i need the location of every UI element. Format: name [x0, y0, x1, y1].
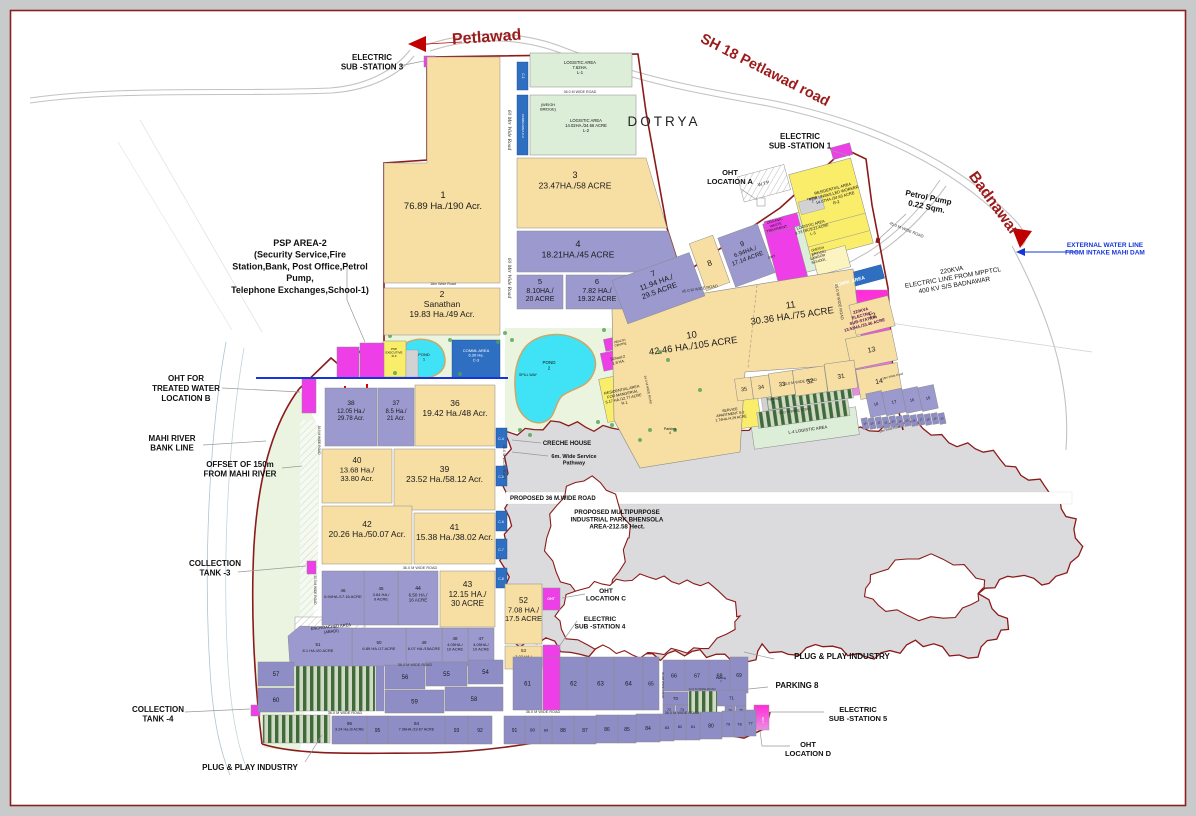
svg-text:87: 87: [582, 728, 588, 734]
oht-a-block: [757, 198, 765, 206]
road-36-3: 36.0 M WIDE ROAD: [328, 711, 363, 715]
plot-85: 85: [618, 715, 636, 743]
plot-66: 66: [663, 660, 685, 691]
label-plug-play-left: PLUG & PLAY INDUSTRY: [202, 763, 298, 772]
plot-38: 3812.05 Ha./29.78 Acr.: [325, 388, 377, 446]
svg-text:95: 95: [375, 728, 381, 734]
plot-80: 80: [700, 712, 722, 739]
plot-86: 86: [596, 715, 618, 743]
road-60mtr-1: 60 Mtr Wide Road: [506, 110, 512, 151]
label-external-water: EXTERNAL WATER LINEFROM INTAKE MAHI DAM: [1065, 242, 1145, 257]
svg-text:63: 63: [597, 682, 604, 688]
label-spill-way: SPILL WAY: [519, 373, 538, 377]
plot-40: 4013.68 Ha./33.80 Acr.: [322, 449, 392, 503]
svg-text:79: 79: [726, 721, 731, 726]
plot-94: 947.96HA./19.67 ACRE: [388, 716, 445, 744]
svg-text:89: 89: [544, 727, 549, 732]
road-30-vert: 30.0M WIDE ROAD: [661, 672, 665, 699]
plot-57: 57: [258, 662, 294, 686]
svg-text:91: 91: [512, 728, 518, 734]
plot-48: 484.05HA./10 ACRE: [442, 628, 468, 666]
plot-87: 87: [574, 716, 596, 744]
label-oht-52: OHT: [547, 597, 555, 601]
plot-3: 323.47HA./58 ACRE: [517, 158, 667, 228]
plot-37: 378.5 Ha./21 Acr.: [378, 388, 414, 446]
label-parking-1: 1: [770, 208, 772, 212]
plot-82: 82: [674, 713, 686, 740]
plot-45: 453.64 HA./9 ACRE: [364, 571, 398, 625]
svg-text:70: 70: [673, 696, 679, 701]
svg-text:82: 82: [678, 724, 683, 729]
plot-69: 69: [730, 657, 748, 693]
plot-96: 963.24 Ha./8 ACRE: [332, 716, 367, 744]
plot-78: 78: [734, 711, 745, 737]
svg-text:60: 60: [273, 698, 280, 704]
plot-95: 95: [367, 716, 388, 744]
svg-text:67: 67: [694, 673, 700, 679]
plot-50: 506.89 HA./17 ACRE: [352, 628, 406, 666]
plot-84: 84: [636, 714, 660, 742]
plot-59: 59: [385, 690, 444, 713]
comm-c8: C-8: [498, 577, 504, 581]
plot-61: 61: [513, 657, 542, 710]
road-36-top: 36.0 M WIDE ROAD: [564, 90, 597, 94]
plot-54: 54: [468, 660, 503, 684]
comm-c1: C-1: [521, 73, 525, 78]
svg-text:86: 86: [604, 727, 610, 733]
road-36-2: 36.0 M WIDE ROAD: [398, 663, 433, 667]
plot-88: 88: [552, 716, 574, 744]
plot-60: 60: [258, 688, 294, 712]
plot-51: 518.1 HA./20 ACRE: [288, 626, 352, 666]
parking-8-block: [689, 690, 717, 713]
svg-text:34: 34: [758, 385, 765, 392]
road-12: 12.0 M WIDE ROAD: [688, 687, 716, 691]
svg-text:83: 83: [665, 725, 670, 730]
plot-58: 58: [445, 687, 503, 711]
oht-strip-61: [543, 657, 560, 710]
svg-text:31: 31: [837, 373, 846, 381]
svg-text:92: 92: [477, 728, 483, 734]
label-parking-8: PARKING 8: [776, 681, 820, 690]
plot-65: 65: [643, 657, 659, 710]
plot-77: 77: [745, 710, 756, 736]
plot-92: 92: [468, 716, 492, 744]
parking-row-a: [296, 661, 375, 711]
plot-44: 446.50 HA./16 ACRE: [398, 571, 438, 625]
comm-c2: COMM AREA C-2: [521, 114, 525, 138]
svg-text:80: 80: [708, 723, 714, 729]
svg-text:64: 64: [625, 682, 632, 688]
plot-90: 90: [525, 716, 540, 744]
comm-c4: C-4: [498, 437, 504, 441]
svg-text:57: 57: [273, 672, 280, 678]
svg-text:65: 65: [648, 681, 654, 687]
site-plan-map: 176.89 Ha./190 Acr.2Sanathan19.83 Ha./49…: [0, 0, 1196, 816]
svg-text:55: 55: [443, 672, 450, 678]
plot-34: 34: [751, 375, 772, 399]
plot-83: 83: [660, 714, 674, 741]
svg-text:56: 56: [402, 675, 409, 681]
svg-text:84: 84: [645, 726, 651, 732]
svg-text:85: 85: [624, 727, 630, 733]
site-plan-page: 176.89 Ha./190 Acr.2Sanathan19.83 Ha./49…: [0, 0, 1196, 816]
label-offset-150m: OFFSET OF 150mFROM MAHI RIVER: [204, 460, 277, 478]
plot-70: 70: [663, 692, 688, 705]
parking-3-block: [406, 350, 418, 377]
plot-52: 527.08 HA./17.5 ACRE: [505, 584, 542, 644]
svg-text:66: 66: [671, 673, 677, 679]
plot-2: 2Sanathan19.83 Ha./49 Acr.: [384, 288, 500, 335]
plot-35: 35: [735, 377, 754, 401]
svg-text:54: 54: [482, 670, 489, 676]
road-36-4: 36.0 M WIDE ROAD: [526, 710, 561, 714]
svg-text:90: 90: [530, 728, 536, 733]
plot-79: 79: [722, 711, 734, 737]
label-proposed-road: PROPOSED 36 M.WIDE ROAD: [510, 496, 596, 502]
svg-text:59: 59: [411, 700, 418, 706]
dotrya-village-label: DOTRYA: [627, 114, 700, 129]
comm-c7: C-7: [498, 548, 504, 552]
comm-c6: C-6: [498, 520, 504, 524]
label-oht-5: OHT: [761, 717, 765, 724]
oht-b-block: [302, 379, 316, 413]
plot-42: 4220.26 Ha./50.07 Acr.: [322, 506, 412, 564]
plot-46: 466.94HA./17.16 ACRE: [322, 571, 364, 625]
plot-89: 89: [540, 716, 552, 744]
label-creche-house: CRECHE HOUSE: [543, 441, 591, 447]
plot-5: 58.10HA./20 ACRE: [517, 275, 563, 309]
svg-text:93: 93: [454, 728, 460, 734]
plot-49: 496.07 HA./15ACRE: [406, 628, 442, 666]
road-60mtr-2: 60 Mtr Wide Road: [506, 258, 512, 299]
svg-text:88: 88: [560, 728, 566, 734]
svg-text:78: 78: [737, 721, 742, 726]
svg-text:81: 81: [691, 724, 696, 729]
psp-block-1: [337, 347, 359, 378]
plot-93: 93: [445, 716, 468, 744]
plot-43: 4312.15 HA./30 ACRE: [440, 571, 495, 627]
plot-41: 4115.38 Ha./38.02 Acr.: [414, 513, 495, 564]
plot-91: 91: [504, 716, 525, 744]
plot-71: 71: [717, 690, 746, 706]
plot-56: 56: [385, 665, 425, 689]
road-36-5: 36.0 M WIDE ROAD: [665, 711, 700, 715]
svg-text:35: 35: [741, 387, 748, 394]
label-mahi-river: MAHI RIVERBANK LINE: [148, 434, 195, 452]
svg-text:71: 71: [729, 696, 735, 701]
plot-62: 62: [560, 657, 587, 710]
plot-63: 63: [587, 657, 614, 710]
psp-block-2: [360, 343, 384, 378]
collection-tank-3-block: [307, 561, 316, 574]
svg-text:61: 61: [524, 682, 531, 688]
road-18-5: 18.5 M WIDE ROAD: [317, 425, 321, 455]
road-36-1: 36.0 M WIDE ROAD: [403, 566, 438, 570]
plot-39: 3923.52 Ha./58.12 Acr.: [394, 449, 495, 510]
svg-text:77: 77: [748, 720, 753, 725]
plot-31: 31: [824, 360, 858, 392]
svg-text:62: 62: [570, 682, 577, 688]
plot-64: 64: [614, 657, 643, 710]
svg-text:58: 58: [471, 697, 478, 703]
label-weigh-bridge-2: (WEIGHBRIDGE): [540, 103, 557, 111]
comm-c5: C-5: [498, 475, 504, 479]
plot-81: 81: [686, 713, 700, 740]
road-20: 20.0 M WIDE ROAD: [313, 575, 317, 605]
svg-text:69: 69: [736, 673, 742, 679]
plot-36: 3619.42 Ha./48 Acr.: [415, 385, 495, 446]
road-18m: 18m Wide Road: [430, 282, 456, 286]
label-plug-play-right: PLUG & PLAY INDUSTRY: [794, 652, 890, 661]
